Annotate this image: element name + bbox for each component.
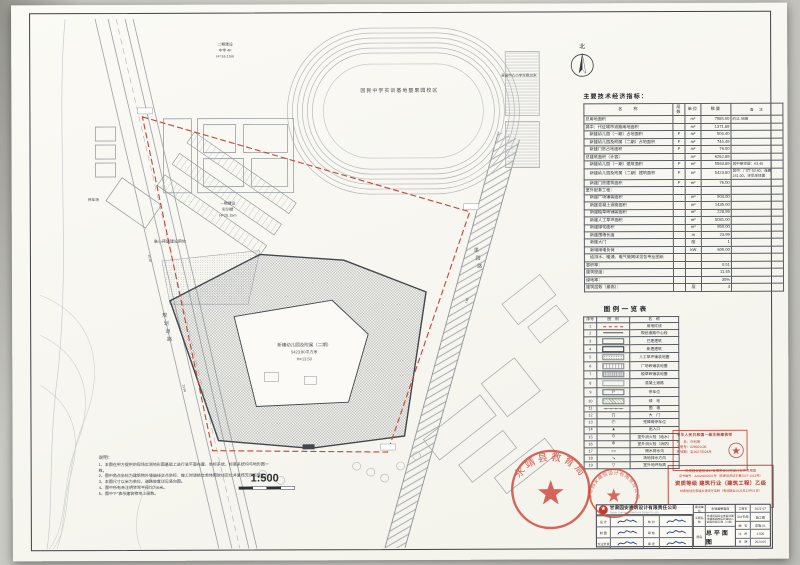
- indicators-panel: 主要技术经济指标： 名 称层数单位数量备 注 总用地面积m²7985.00约11…: [583, 91, 768, 293]
- note-line: 1、本图在甲方提供的现场实测地形图基础上进行总平面布置，坐标系统、标高系统均与地…: [99, 462, 277, 473]
- hatch-icon: [602, 398, 624, 404]
- indicator-cell: [673, 224, 685, 232]
- school-note-label: 景园中心小学东侧20米: [501, 73, 537, 78]
- indicator-cell: 11.45: [701, 269, 731, 277]
- indicator-cell: 层: [686, 284, 702, 292]
- indicator-header-cell: 数量: [701, 103, 731, 115]
- indicator-cell: [685, 269, 701, 277]
- signature: [660, 537, 693, 548]
- signature-label: 审 核: [644, 526, 660, 537]
- license-grade: 资质等级 建筑行业（建筑工程）乙级: [670, 479, 772, 487]
- titleblock-field: 工程号2021-07: [736, 505, 770, 514]
- indicator-cell: 0.51: [701, 261, 731, 269]
- indicator-head-row: 名 称层数单位数量备 注: [584, 103, 783, 116]
- titleblock-field: 比 例1:500: [736, 530, 770, 539]
- phase-top-line3: H=16.15m: [216, 55, 234, 59]
- indicator-cell: 600.00: [701, 246, 731, 254]
- architect-stamp-title: 中华人民共和国一级注册建筑师: [677, 433, 745, 439]
- sign-grid: 设 计校 对制 图审 核专业负责审 定: [597, 515, 693, 548]
- project-name: 永靖县回民中学实训基地暨果园校区新建幼儿园及附属工程（二期）: [706, 513, 735, 526]
- indicator-cell: m²: [685, 168, 701, 179]
- notes-list: 1、本图在甲方提供的现场实测地形图基础上进行总平面布置，坐标系统、标高系统均与地…: [99, 462, 277, 497]
- indicator-cell: 1371.89: [701, 123, 731, 131]
- company-name-en: Gansu Yuan'an Architectural Design Co.,L…: [610, 511, 677, 514]
- indicator-cell: [673, 254, 685, 262]
- signature: [611, 526, 644, 537]
- phase-top-line1: 二期建设: [218, 42, 233, 47]
- title-block: ★ 甘肃园安建筑设计有限责任公司 Gansu Yuan'an Architect…: [596, 504, 771, 548]
- indicator-cell: F: [673, 161, 685, 169]
- plainrect-icon: [602, 380, 624, 386]
- indicator-cell: [673, 246, 685, 254]
- indicator-cell: m²: [685, 224, 701, 232]
- project-label: 工程名称: [694, 513, 706, 526]
- indicator-cell: 1435.00: [701, 201, 731, 209]
- indicator-cell: [673, 232, 685, 240]
- sports-courts: [501, 51, 573, 346]
- signature-label: 专业负责: [597, 537, 611, 548]
- license-line2: 证书编号：A2620062001号（甘建设资证字第2027-1013号）: [670, 473, 772, 478]
- signature: [660, 515, 693, 526]
- signature: [611, 515, 644, 526]
- indicator-cell: 904.00: [701, 194, 731, 202]
- indicator-cell: 7985.00: [701, 116, 731, 124]
- indicator-cell: [701, 254, 731, 262]
- architect-name: 许利明: [690, 439, 700, 443]
- indicator-cell: 76.00: [701, 145, 731, 153]
- indicator-cell: 建筑层数（最高）：: [585, 284, 674, 292]
- indicator-cell: m²: [685, 179, 701, 187]
- phase-left-line3: H=20.15m: [219, 214, 237, 218]
- signature: [660, 526, 693, 537]
- indicator-cell: [685, 261, 701, 269]
- gridg-icon: [602, 372, 624, 378]
- indicator-cell: 座: [685, 239, 701, 247]
- indicator-cell: F: [673, 168, 685, 179]
- indicator-cell: F: [673, 138, 685, 146]
- indicator-cell: [673, 209, 685, 217]
- notes-title: 说明：: [99, 454, 277, 461]
- indicator-cell: m²: [685, 216, 701, 224]
- legend-row: 6广场砖铺装地面: [584, 362, 679, 371]
- centerline-icon: [603, 333, 623, 334]
- svg-text:北: 北: [579, 42, 585, 50]
- rectbold-icon: [602, 346, 624, 352]
- company-logo-icon: ★: [599, 505, 608, 514]
- parking-label: 停车场: [88, 197, 100, 202]
- owner-label: 建设单位: [694, 505, 706, 512]
- reserved-land-label: 高小预留建设用地: [154, 238, 186, 244]
- titleblock-field: 日 期2024.05: [736, 538, 770, 546]
- drawing-title: 总平面图: [706, 527, 735, 546]
- indicator-cell: [685, 254, 701, 262]
- glyphonly-icon: ▽: [604, 463, 624, 468]
- indicator-cell: m²: [685, 131, 701, 139]
- dimension-label: 15.00: [147, 254, 153, 263]
- indicator-cell: m²: [685, 123, 701, 131]
- phase-left-line2: 实训楼: [222, 207, 234, 212]
- indicator-cell: m²: [685, 153, 701, 161]
- legend-panel: 图例一览表 序号图 例名 称 1用地红线2规划道路中心线3已建建筑4新建建筑5人…: [583, 303, 670, 469]
- indicator-cell: [673, 153, 685, 161]
- glyphonly-icon: Ⓟ: [603, 420, 623, 425]
- indicator-cell: m²: [685, 138, 701, 146]
- indicator-header-cell: 层数: [673, 104, 685, 116]
- indicator-cell: [673, 217, 685, 225]
- indicator-cell: [701, 186, 731, 194]
- grid-icon: [602, 363, 624, 369]
- indicator-cell: kW: [685, 246, 701, 254]
- indicator-cell: 4: [702, 284, 732, 292]
- signature-label: 设 计: [597, 515, 611, 526]
- indicator-cell: m: [685, 231, 701, 239]
- legend-row: 19▽室外地坪标高: [584, 461, 679, 468]
- indicator-cell: F: [673, 131, 685, 139]
- indicator-cell: m²: [685, 209, 701, 217]
- building-label-line3: H=13.50: [297, 356, 313, 361]
- indicator-cell: [674, 284, 686, 292]
- indicator-cell: [673, 239, 685, 247]
- indicator-cell: [732, 284, 784, 292]
- indicator-row: 建筑层数（最高）：层4: [585, 284, 784, 292]
- indicator-cell: 5423.80: [701, 168, 731, 179]
- legend-row: 9P停车位: [584, 387, 679, 396]
- notes: 说明： 1、本图在甲方提供的现场实测地形图基础上进行总平面布置，坐标系统、标高系…: [99, 454, 277, 497]
- indicator-cell: 6262.89: [701, 153, 731, 161]
- legend-body: 1用地红线2规划道路中心线3已建建筑4新建建筑5人工草坪铺装地面6广场砖铺装地面…: [584, 323, 680, 469]
- indicator-cell: 23.99: [701, 231, 731, 239]
- indicator-cell: 新建幼儿园及附属（二期）建筑面积: [584, 168, 673, 179]
- indicator-cell: F: [673, 179, 685, 187]
- signature-label: 审 定: [644, 537, 660, 548]
- field-rows: 工程号2021-07设计阶段施工图图 号总施-01比 例1:500日 期2024…: [736, 505, 770, 546]
- indicator-cell: [673, 116, 685, 124]
- running-track: [287, 28, 520, 195]
- owner-name: 永靖县教育局: [706, 505, 735, 512]
- architect-seal-icon: [728, 442, 745, 459]
- indicator-cell: 950.00: [701, 224, 731, 232]
- indicator-header-cell: 名 称: [584, 104, 673, 116]
- architect-valid-date: 至2027年04月: [690, 450, 712, 454]
- legend-title: 图例一览表: [583, 303, 669, 313]
- indicator-cell: 其中：门厅 63.40、连廊 241.00，详见单体图: [731, 168, 783, 179]
- indicator-cell: 1: [701, 239, 731, 247]
- indicator-cell: m²: [685, 146, 701, 154]
- license-line4: 甘肃省住房和城乡建设厅监制（有效期至2025年12月31日）: [670, 488, 772, 493]
- signature-label: 校 对: [644, 515, 660, 526]
- drawing-label: 图名: [694, 527, 706, 546]
- glyphonly-icon: ⊗: [604, 442, 624, 447]
- indicator-cell: 76.00: [701, 179, 731, 187]
- redline-icon: [603, 326, 623, 327]
- indicator-header-cell: 备 注: [731, 103, 783, 115]
- legend-row: 8混凝土道路: [584, 379, 679, 388]
- prect-icon: P: [602, 389, 624, 396]
- indicator-cell: [685, 187, 701, 195]
- legend-table: 序号图 例名 称 1用地红线2规划道路中心线3已建建筑4新建建筑5人工草坪铺装地…: [583, 316, 680, 470]
- phase-left-line1: 一期建设: [220, 201, 235, 206]
- rect-icon: [602, 338, 624, 344]
- indicator-cell: [673, 261, 685, 269]
- indicator-cell: m²: [685, 194, 701, 202]
- indicator-cell: F: [673, 146, 685, 154]
- trees: [259, 452, 421, 485]
- titleblock-company-section: ★ 甘肃园安建筑设计有限责任公司 Gansu Yuan'an Architect…: [597, 505, 694, 546]
- signature-label: 制 图: [597, 526, 611, 537]
- indicator-cell: [673, 276, 685, 284]
- indicator-cell: 5081.00: [701, 216, 731, 224]
- glyphonly-icon: ▲: [604, 428, 624, 433]
- indicator-cell: [673, 123, 685, 131]
- parking-stalls: [157, 132, 296, 256]
- indicator-body: 总用地面积m²7985.00约11.98亩其中：代征城市道路用地面积m²1371…: [584, 115, 784, 291]
- glyphonly-icon: ∏: [603, 413, 623, 418]
- wall-icon: [603, 407, 623, 410]
- glyphonly-icon: ↘: [604, 456, 624, 461]
- indicator-cell: m²: [685, 202, 701, 210]
- north-arrow-icon: 北: [571, 42, 593, 76]
- legend-row: 3已建建筑: [584, 336, 679, 345]
- building-label-line2: 5423.80平方米: [291, 348, 317, 354]
- indicator-cell: m²: [685, 161, 701, 169]
- license-stamp: 甘肃园安建筑设计有限责任公司设计文件专用章 证书编号：A2620062001号（…: [668, 465, 774, 508]
- track-label: 回民中学实训基地暨果园校区: [360, 87, 438, 94]
- indicator-table: 名 称层数单位数量备 注 总用地面积m²7985.00约11.98亩其中：代征城…: [583, 103, 784, 293]
- drawing-sheet: 北 1:500 回民中学实训基地暨果园校区 景园中心小学东侧20米 二期建设 中…: [11, 3, 789, 562]
- dots-icon: [602, 354, 624, 360]
- titleblock-field: 设计阶段施工图: [736, 513, 770, 522]
- glyphonly-icon: ⊙: [604, 435, 624, 440]
- indicator-cell: 35%: [701, 276, 731, 284]
- indicator-cell: 5563.89: [701, 160, 731, 168]
- phase-top-line2: 中学 4F: [219, 48, 233, 53]
- indicators-title: 主要技术经济指标：: [583, 91, 767, 101]
- indicator-cell: 744.49: [701, 138, 731, 146]
- indicator-cell: [673, 187, 685, 195]
- indicator-cell: [673, 269, 685, 277]
- indicator-cell: [673, 194, 685, 202]
- indicator-cell: 228.99: [701, 209, 731, 217]
- indicator-header-cell: 单位: [685, 103, 701, 115]
- indicator-cell: m²: [685, 116, 701, 124]
- indicator-cell: 504.40: [701, 131, 731, 139]
- note-line: 5、图中"F"表示建筑物地上层数。: [99, 491, 277, 497]
- architect-reg-number: 628029-06: [690, 445, 706, 449]
- indicator-cell: [673, 202, 685, 210]
- signature: [611, 537, 644, 548]
- indicator-cell: [685, 276, 701, 284]
- legend-row: 5人工草坪铺装地面: [584, 353, 679, 362]
- legend-row: 7植草砖铺装地面: [584, 370, 679, 379]
- gate-marker: [303, 444, 315, 449]
- indicator-row: 新建幼儿园及附属（二期）建筑面积Fm²5423.80其中：门厅 63.40、连廊…: [584, 168, 783, 180]
- glyphonly-icon: ≈≈: [604, 449, 624, 454]
- titleblock-field: 图 号总施-01: [736, 522, 770, 531]
- legend-row: 10绿 地: [584, 396, 679, 405]
